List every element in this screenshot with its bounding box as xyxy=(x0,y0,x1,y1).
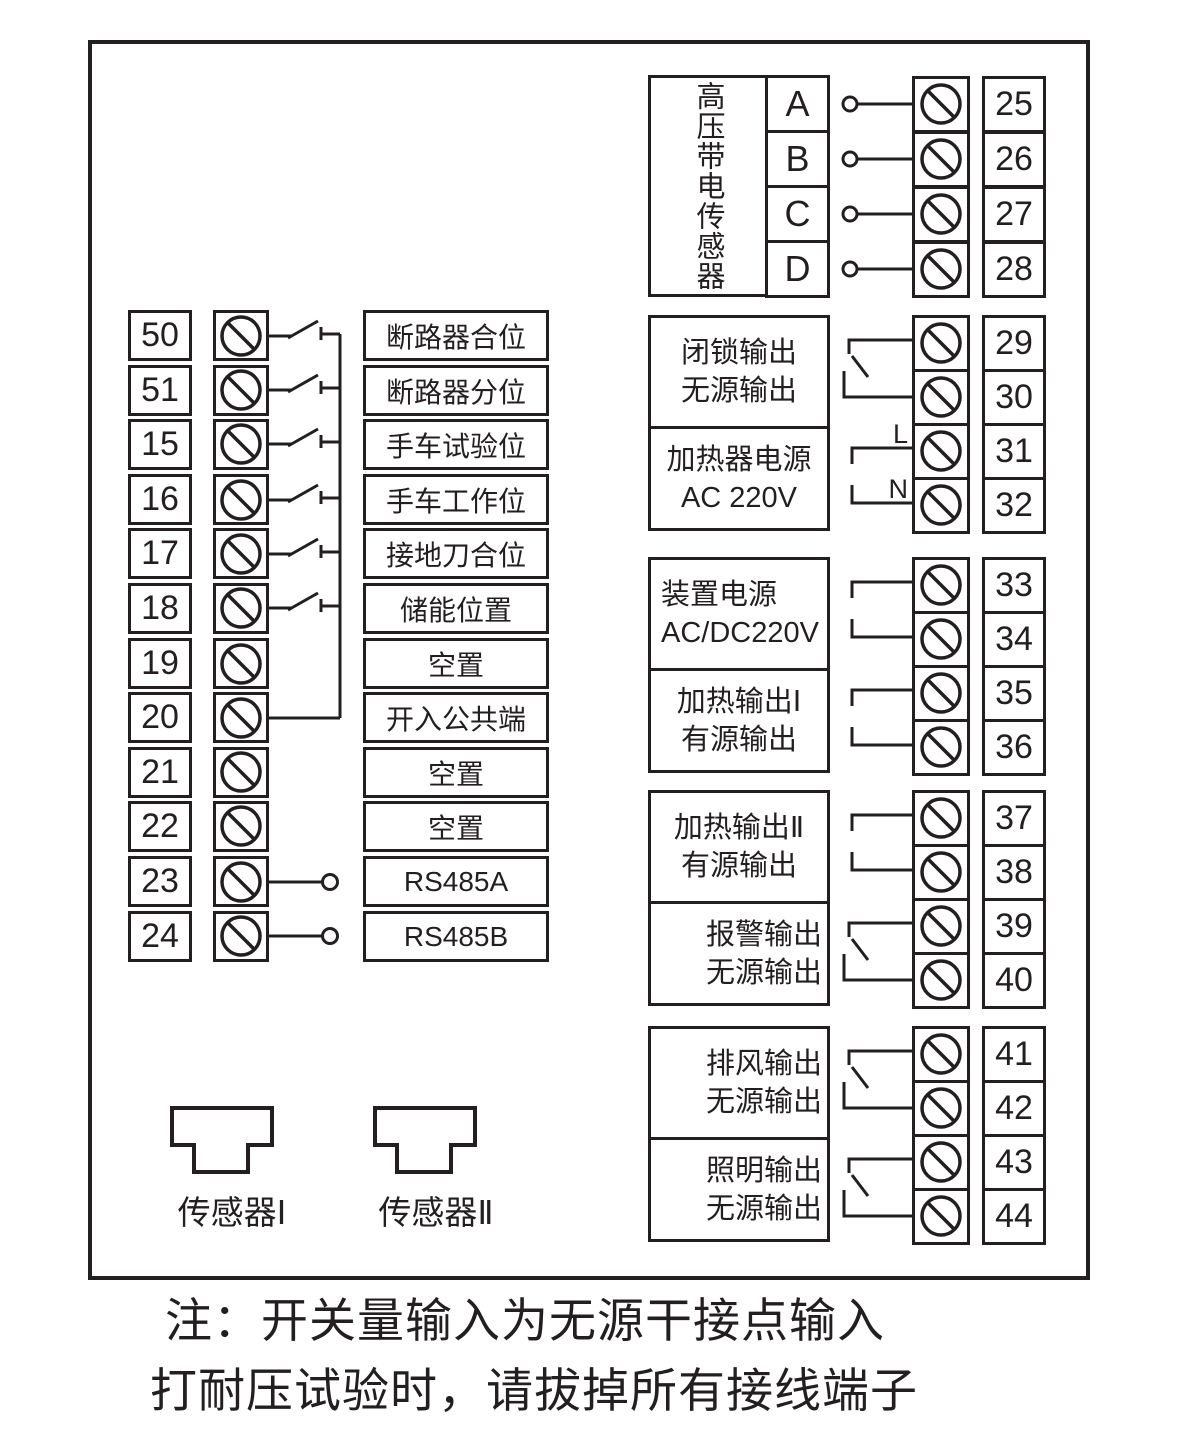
screw-terminal-cell xyxy=(213,692,269,743)
output-label-line: 加热器电源 xyxy=(666,441,811,479)
terminal-number-44: 44 xyxy=(982,1188,1046,1245)
input-label-truck-test: 手车试验位 xyxy=(363,419,549,470)
output-section-heat-2: 加热输出Ⅱ 有源输出 xyxy=(651,793,827,901)
screw-terminal-cell xyxy=(912,557,970,614)
input-label-rs485b: RS485B xyxy=(363,911,549,962)
terminal-number-28: 28 xyxy=(982,241,1046,298)
terminal-number-32: 32 xyxy=(982,477,1046,534)
input-label-spare-3: 空置 xyxy=(363,801,549,852)
terminal-number-16: 16 xyxy=(128,474,192,525)
output-label-line: 无源输出 xyxy=(706,1083,822,1121)
screw-terminal-cell xyxy=(912,1188,970,1245)
input-label-spare-1: 空置 xyxy=(363,638,549,689)
terminal-number-34: 34 xyxy=(982,611,1046,668)
terminal-number-26: 26 xyxy=(982,131,1046,188)
terminal-number-23: 23 xyxy=(128,856,192,907)
hv-sensor-title: 高压带电传感器 xyxy=(651,78,765,294)
output-label-line: 报警输出 xyxy=(706,916,822,954)
terminal-number-17: 17 xyxy=(128,528,192,579)
screw-terminal-cell xyxy=(912,898,970,955)
screw-terminal-cell xyxy=(213,856,269,907)
screw-terminal-cell xyxy=(213,419,269,470)
terminal-number-50: 50 xyxy=(128,310,192,361)
terminal-number-18: 18 xyxy=(128,583,192,634)
terminal-number-36: 36 xyxy=(982,719,1046,776)
input-label-common: 开入公共端 xyxy=(363,692,549,743)
output-group-box-1: 闭锁输出 无源输出 加热器电源 AC 220V xyxy=(648,315,830,531)
screw-terminal-cell xyxy=(213,365,269,416)
screw-terminal-cell xyxy=(912,369,970,426)
screw-terminal-cell xyxy=(213,474,269,525)
screw-terminal-cell xyxy=(912,241,970,298)
screw-terminal-cell xyxy=(213,801,269,852)
terminal-number-15: 15 xyxy=(128,419,192,470)
screw-terminal-cell xyxy=(912,611,970,668)
screw-terminal-cell xyxy=(912,423,970,480)
output-label-line: 有源输出 xyxy=(681,721,797,759)
terminal-number-19: 19 xyxy=(128,638,192,689)
output-label-line: 加热输出Ⅱ xyxy=(674,809,804,847)
input-label-breaker-closed: 断路器合位 xyxy=(363,310,549,361)
terminal-number-41: 41 xyxy=(982,1026,1046,1083)
hv-sensor-pin-a: A xyxy=(765,75,830,133)
terminal-number-21: 21 xyxy=(128,747,192,798)
terminal-wiring-diagram: 50 51 15 16 17 18 19 20 21 22 23 24 断路器合… xyxy=(0,0,1180,1432)
terminal-number-42: 42 xyxy=(982,1080,1046,1137)
terminal-number-22: 22 xyxy=(128,801,192,852)
output-section-device-power: 装置电源 AC/DC220V xyxy=(651,560,827,668)
sensor-2-label: 传感器Ⅱ xyxy=(366,1186,506,1234)
terminal-number-20: 20 xyxy=(128,692,192,743)
terminal-number-24: 24 xyxy=(128,911,192,962)
output-group-box-4: 排风输出 无源输出 照明输出 无源输出 xyxy=(648,1026,830,1242)
input-label-truck-work: 手车工作位 xyxy=(363,474,549,525)
terminal-number-35: 35 xyxy=(982,665,1046,722)
terminal-number-25: 25 xyxy=(982,76,1046,133)
screw-terminal-cell xyxy=(912,315,970,372)
output-section-lock: 闭锁输出 无源输出 xyxy=(651,318,827,426)
screw-terminal-cell xyxy=(912,76,970,133)
screw-terminal-cell xyxy=(213,638,269,689)
screw-terminal-cell xyxy=(912,1080,970,1137)
output-label-line: 闭锁输出 xyxy=(681,334,797,372)
note-line-2: 打耐压试验时，请拔掉所有接线端子 xyxy=(150,1364,918,1418)
output-section-heat-1: 加热输出Ⅰ 有源输出 xyxy=(651,668,827,770)
terminal-number-30: 30 xyxy=(982,369,1046,426)
hv-sensor-pin-c: C xyxy=(765,185,830,243)
output-label-line: 有源输出 xyxy=(681,847,797,885)
input-label-ground-knife: 接地刀合位 xyxy=(363,528,549,579)
screw-terminal-cell xyxy=(213,583,269,634)
screw-terminal-cell xyxy=(912,790,970,847)
output-label-line: 无源输出 xyxy=(706,954,822,992)
screw-terminal-cell xyxy=(912,186,970,243)
output-group-box-3: 加热输出Ⅱ 有源输出 报警输出 无源输出 xyxy=(648,790,830,1006)
output-label-line: AC 220V xyxy=(681,479,797,517)
screw-terminal-cell xyxy=(213,911,269,962)
terminal-number-40: 40 xyxy=(982,952,1046,1009)
output-group-box-2: 装置电源 AC/DC220V 加热输出Ⅰ 有源输出 xyxy=(648,557,830,773)
input-label-energy-storage: 储能位置 xyxy=(363,583,549,634)
input-label-rs485a: RS485A xyxy=(363,856,549,907)
screw-terminal-cell xyxy=(912,131,970,188)
output-label-line: 无源输出 xyxy=(706,1190,822,1228)
output-label-line: 装置电源 xyxy=(661,576,777,614)
output-section-alarm: 报警输出 无源输出 xyxy=(651,901,827,1003)
output-label-line: 无源输出 xyxy=(681,372,797,410)
screw-terminal-cell xyxy=(912,665,970,722)
input-label-breaker-open: 断路器分位 xyxy=(363,365,549,416)
terminal-number-31: 31 xyxy=(982,423,1046,480)
screw-terminal-cell xyxy=(912,719,970,776)
hv-sensor-pin-b: B xyxy=(765,130,830,188)
terminal-number-43: 43 xyxy=(982,1134,1046,1191)
output-label-line: 排风输出 xyxy=(706,1045,822,1083)
note-line-1: 注：开关量输入为无源干接点输入 xyxy=(165,1294,885,1348)
output-section-heater-power: 加热器电源 AC 220V xyxy=(651,426,827,528)
output-section-lighting: 照明输出 无源输出 xyxy=(651,1137,827,1239)
terminal-number-37: 37 xyxy=(982,790,1046,847)
screw-terminal-cell xyxy=(213,310,269,361)
terminal-number-39: 39 xyxy=(982,898,1046,955)
output-label-line: 照明输出 xyxy=(706,1152,822,1190)
screw-terminal-cell xyxy=(912,477,970,534)
screw-terminal-cell xyxy=(213,747,269,798)
terminal-number-29: 29 xyxy=(982,315,1046,372)
screw-terminal-cell xyxy=(912,844,970,901)
hv-sensor-pin-d: D xyxy=(765,240,830,298)
output-label-line: AC/DC220V xyxy=(661,614,819,652)
input-label-spare-2: 空置 xyxy=(363,747,549,798)
screw-terminal-cell xyxy=(912,1134,970,1191)
terminal-number-33: 33 xyxy=(982,557,1046,614)
sensor-1-label: 传感器Ⅰ xyxy=(162,1186,302,1234)
screw-terminal-cell xyxy=(912,952,970,1009)
terminal-number-27: 27 xyxy=(982,186,1046,243)
screw-terminal-cell xyxy=(213,528,269,579)
terminal-number-38: 38 xyxy=(982,844,1046,901)
output-section-exhaust: 排风输出 无源输出 xyxy=(651,1029,827,1137)
output-label-line: 加热输出Ⅰ xyxy=(677,683,802,721)
screw-terminal-cell xyxy=(912,1026,970,1083)
terminal-number-51: 51 xyxy=(128,365,192,416)
